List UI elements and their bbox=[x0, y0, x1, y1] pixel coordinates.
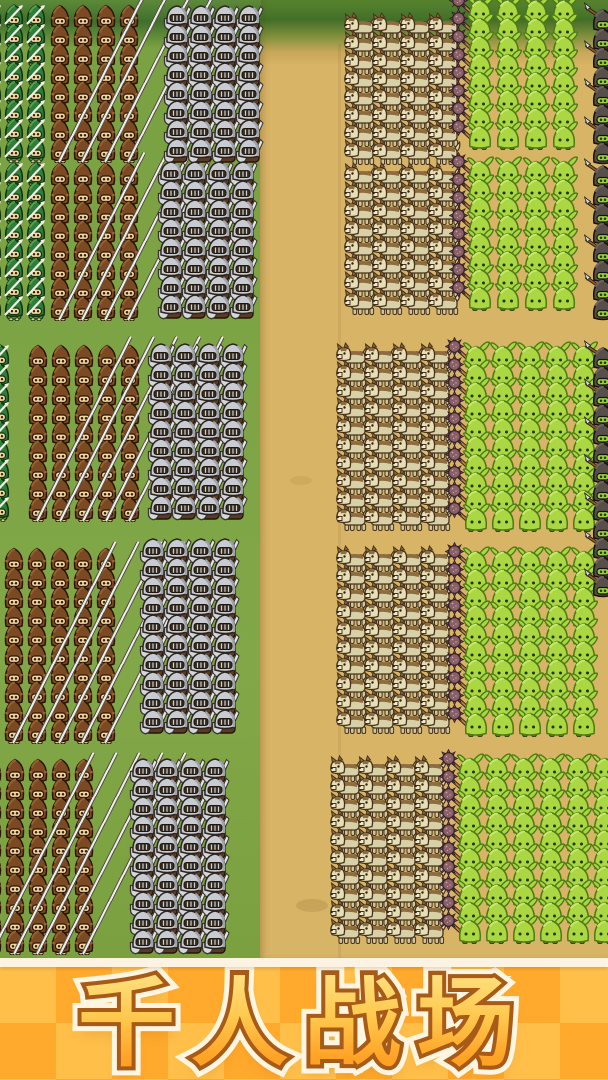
goblin-unit bbox=[591, 914, 608, 944]
goblin-unit bbox=[543, 707, 571, 737]
game-screen: 千人战场 千人战场 千人战场 bbox=[0, 0, 608, 1080]
archer-unit bbox=[2, 293, 26, 321]
goblin-unit bbox=[564, 914, 592, 944]
spearman-unit bbox=[584, 291, 608, 321]
archer-unit bbox=[24, 135, 48, 163]
goblin-unit bbox=[537, 914, 565, 944]
banner-title-text: 千人战场 bbox=[78, 975, 530, 1072]
goblin-unit bbox=[456, 914, 484, 944]
archer-unit bbox=[2, 135, 26, 163]
battlefield-units bbox=[0, 0, 608, 958]
goblin-unit bbox=[510, 914, 538, 944]
banner-top-stripe bbox=[0, 958, 608, 967]
goblin-unit bbox=[466, 281, 494, 311]
goblin-unit bbox=[466, 120, 494, 150]
goblin-unit bbox=[516, 502, 544, 532]
goblin-unit bbox=[489, 707, 517, 737]
archer-unit bbox=[0, 494, 12, 522]
knight-unit bbox=[228, 291, 258, 321]
goblin-unit bbox=[483, 914, 511, 944]
goblin-unit bbox=[550, 281, 578, 311]
goblin-unit bbox=[494, 281, 522, 311]
goblin-unit bbox=[489, 502, 517, 532]
goblin-unit bbox=[570, 707, 598, 737]
goblin-unit bbox=[462, 502, 490, 532]
spearman-unit bbox=[584, 568, 608, 598]
goblin-unit bbox=[543, 502, 571, 532]
knight-unit bbox=[210, 706, 240, 736]
goblin-unit bbox=[550, 120, 578, 150]
goblin-unit bbox=[516, 707, 544, 737]
knight-unit bbox=[218, 492, 248, 522]
banner-title: 千人战场 千人战场 千人战场 bbox=[0, 967, 608, 1080]
goblin-unit bbox=[522, 120, 550, 150]
knight-unit bbox=[200, 926, 230, 956]
goblin-unit bbox=[494, 120, 522, 150]
goblin-unit bbox=[462, 707, 490, 737]
archer-unit bbox=[24, 293, 48, 321]
goblin-unit bbox=[522, 281, 550, 311]
battle-banner: 千人战场 千人战场 千人战场 bbox=[0, 958, 608, 1080]
